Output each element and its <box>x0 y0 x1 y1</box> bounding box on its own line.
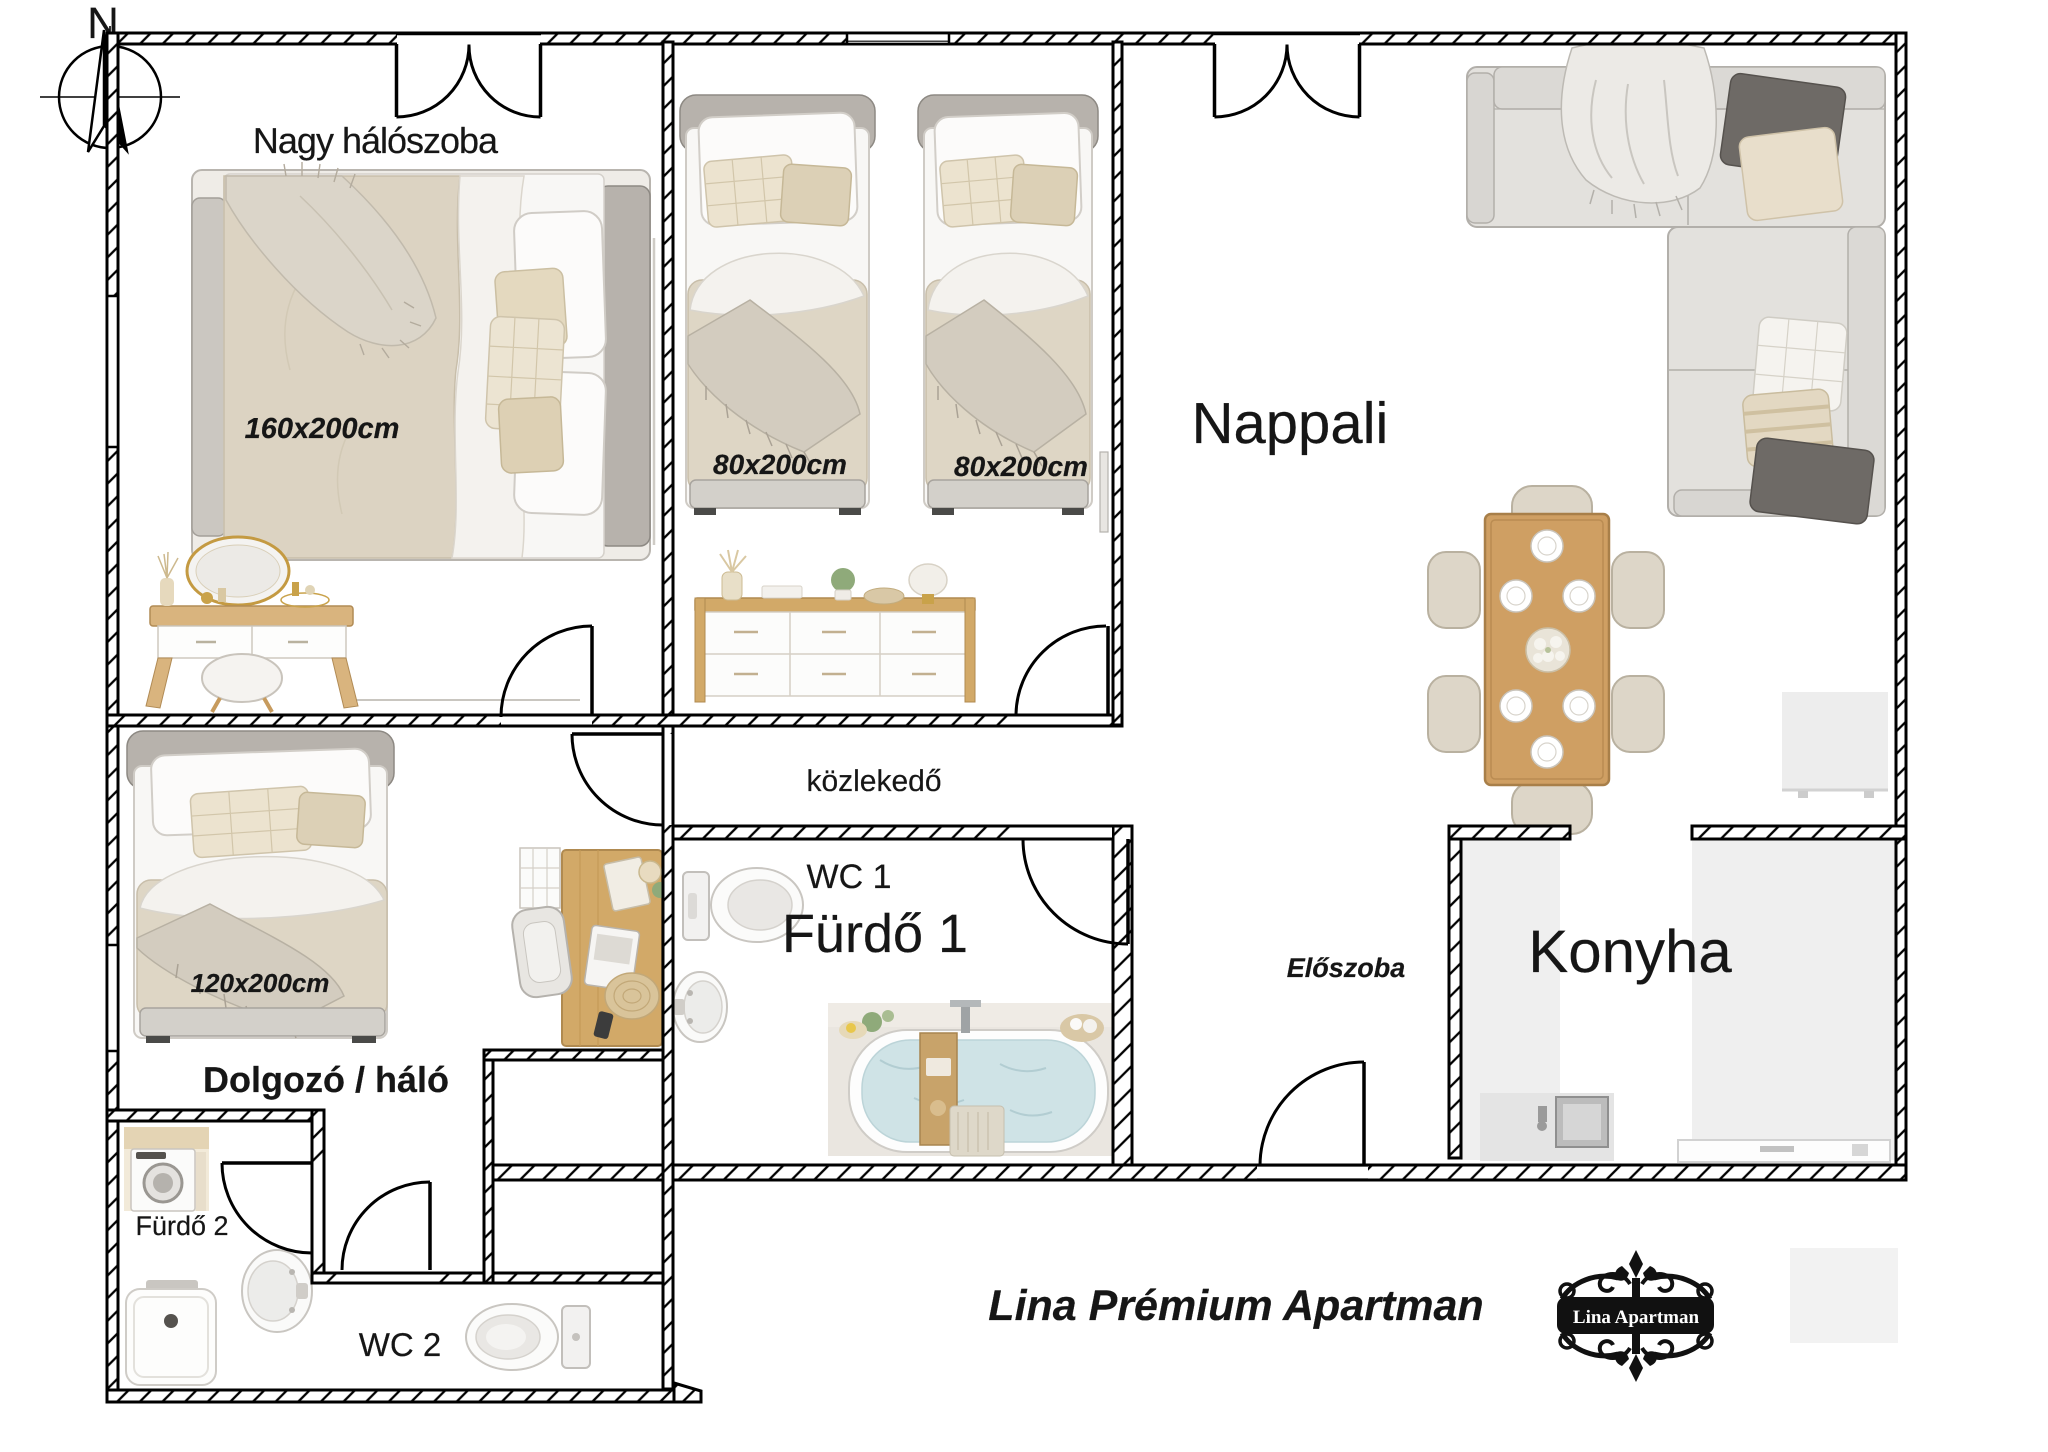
svg-text:Nappali: Nappali <box>1192 391 1389 456</box>
svg-text:Dolgozó / háló: Dolgozó / háló <box>203 1059 449 1100</box>
svg-text:80x200cm: 80x200cm <box>954 451 1088 482</box>
svg-text:160x200cm: 160x200cm <box>245 413 400 445</box>
svg-text:120x200cm: 120x200cm <box>191 968 330 998</box>
svg-text:Fürdő 2: Fürdő 2 <box>135 1211 228 1241</box>
svg-text:Előszoba: Előszoba <box>1287 953 1406 983</box>
svg-text:közlekedő: közlekedő <box>806 765 941 798</box>
svg-text:Lina Prémium Apartman: Lina Prémium Apartman <box>988 1282 1483 1330</box>
svg-text:WC 2: WC 2 <box>359 1326 442 1363</box>
svg-text:WC 1: WC 1 <box>807 858 892 896</box>
svg-text:Nagy hálószoba: Nagy hálószoba <box>253 120 499 161</box>
svg-text:80x200cm: 80x200cm <box>713 449 847 480</box>
svg-text:Konyha: Konyha <box>1528 918 1732 985</box>
svg-text:Lina Apartman: Lina Apartman <box>1573 1307 1700 1328</box>
svg-text:Fürdő 1: Fürdő 1 <box>782 904 968 964</box>
